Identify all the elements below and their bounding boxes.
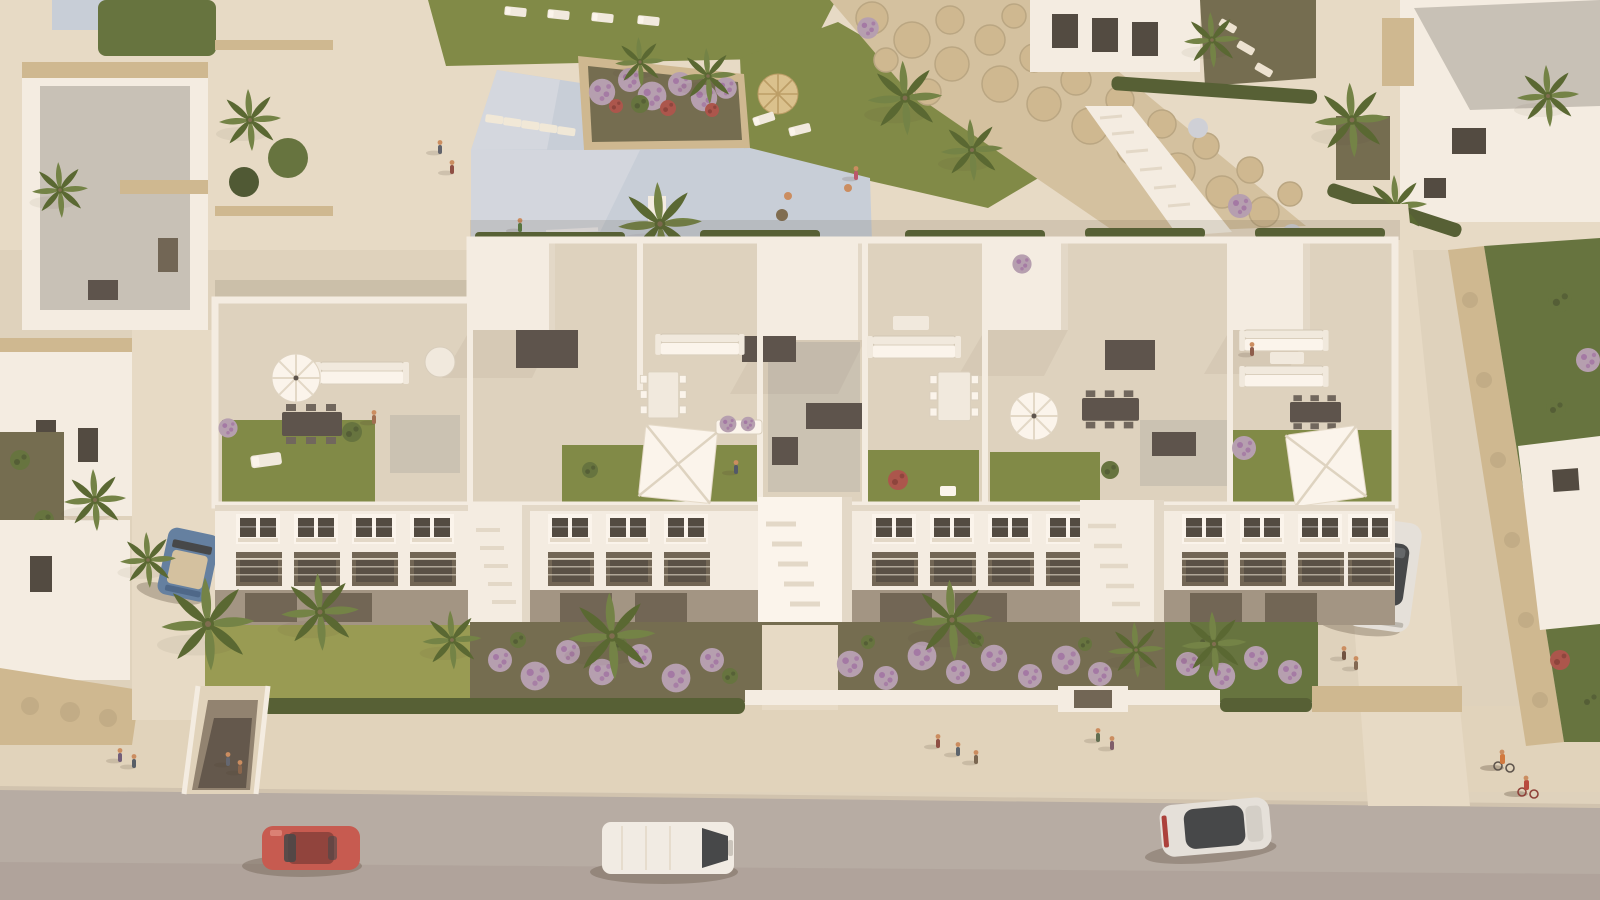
sunlight-tint-overlay (0, 0, 1600, 900)
aerial-render-scene (0, 0, 1600, 900)
